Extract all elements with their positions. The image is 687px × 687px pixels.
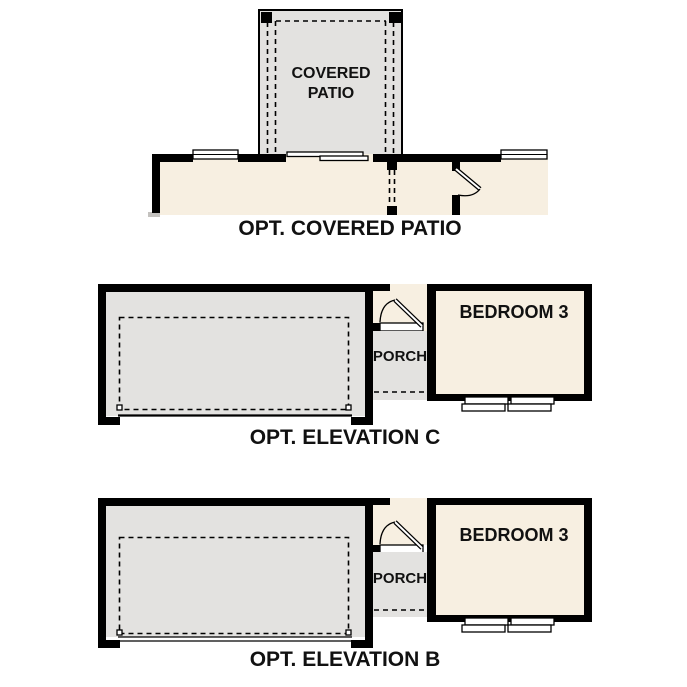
window [501,150,547,159]
elevation-b-porch-label: PORCH [369,571,431,587]
patio-post [389,12,401,23]
elevation-c-caption: OPT. ELEVATION C [98,427,592,449]
bedroom-top-wall [427,498,592,505]
covered-patio-room-label: COVERED PATIO [281,64,381,104]
dash-end-marker [117,630,122,635]
entry-wall-stub [373,284,390,291]
garage-left-wall [98,498,106,648]
covered-patio-caption: OPT. COVERED PATIO [152,218,548,240]
garage-corner-stub [98,640,120,648]
rear-wall [238,154,286,162]
bedroom-top-wall [427,284,592,291]
window [462,618,508,632]
covered-patio-plan [148,10,548,217]
dash-end-marker [346,630,351,635]
window [508,397,554,411]
house-interior [152,154,548,215]
garage-top-wall [98,498,373,506]
garage-area [98,284,373,416]
elevation-c-porch-label: PORCH [369,349,431,365]
left-wall [152,154,160,213]
patio-post [261,12,272,23]
elevation-b-caption: OPT. ELEVATION B [98,649,592,671]
bedroom-left-wall [427,284,436,401]
bedroom-bottom-wall [427,394,592,401]
dash-end-marker [346,405,351,410]
bedroom-bottom-wall [427,615,592,622]
elevation-b-plan [98,498,592,648]
bedroom-area [427,498,592,622]
garage-left-wall [98,284,106,425]
window [193,150,238,159]
garage-area [98,498,373,637]
bedroom-right-wall [584,498,592,622]
floorplan-page: COVERED PATIO OPT. COVERED PATIO BEDROOM… [0,0,687,687]
garage-corner-stub [351,640,373,648]
elevation-b-bedroom-label: BEDROOM 3 [436,525,592,545]
garage-corner-stub [98,417,120,425]
dash-end-marker [117,405,122,410]
rear-wall [373,154,501,162]
bedroom-left-wall [427,498,436,622]
entry-wall-stub [373,498,390,505]
rear-wall [152,154,193,162]
window [462,397,508,411]
garage-corner-stub [351,417,373,425]
porch-area [373,331,427,400]
elevation-c-bedroom-label: BEDROOM 3 [436,302,592,322]
window [508,618,554,632]
garage-top-wall [98,284,373,292]
